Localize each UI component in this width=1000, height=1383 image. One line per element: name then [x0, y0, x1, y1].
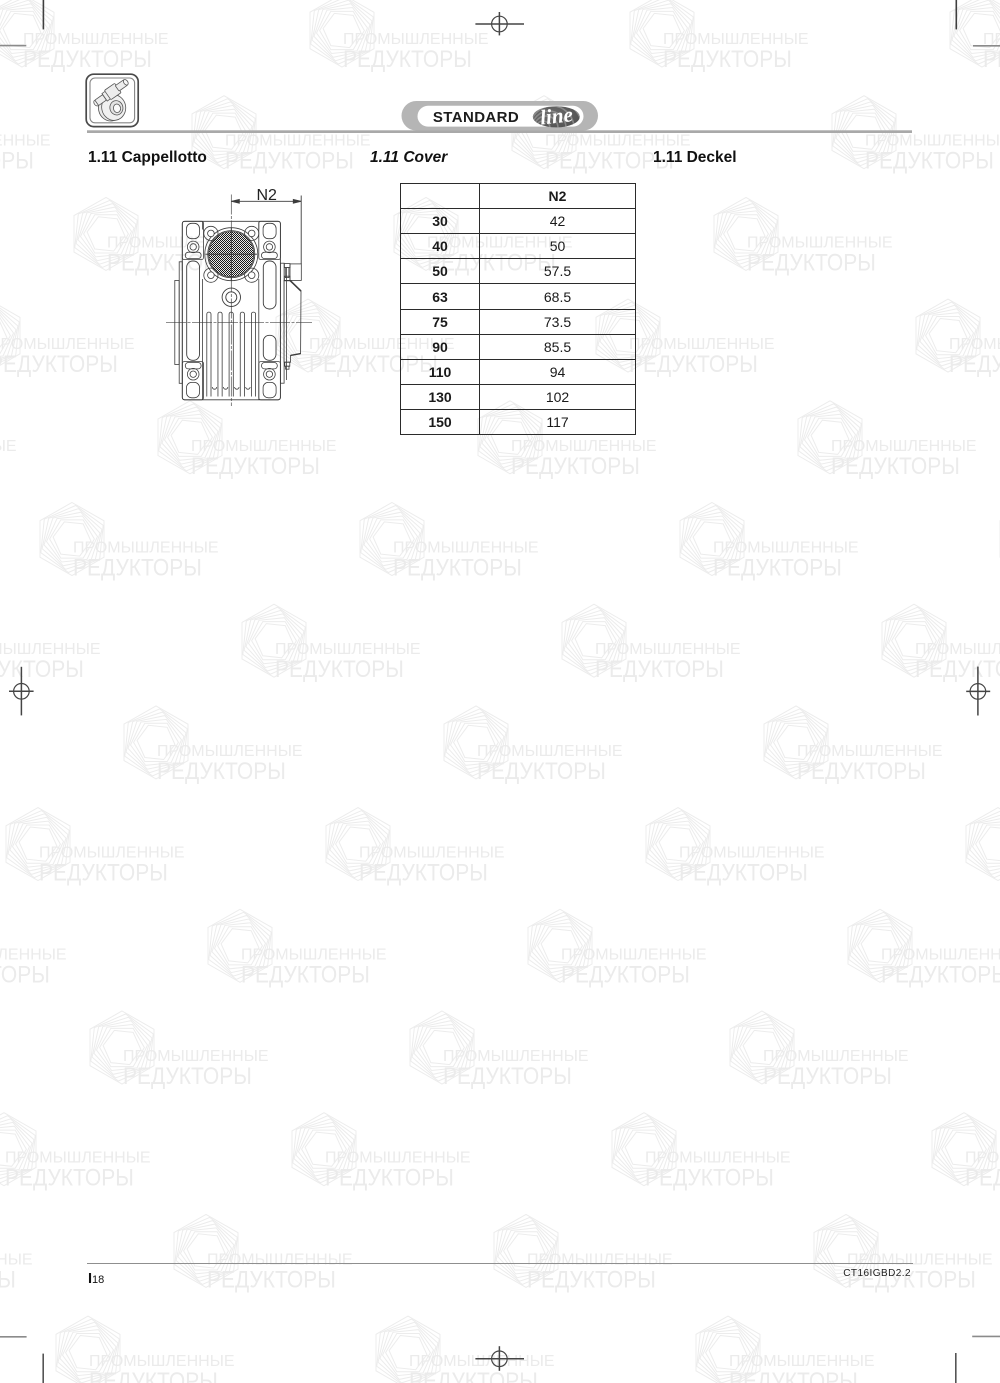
svg-text:STANDARD: STANDARD — [433, 109, 519, 126]
svg-text:N2: N2 — [257, 187, 278, 204]
svg-text:line: line — [539, 102, 574, 129]
